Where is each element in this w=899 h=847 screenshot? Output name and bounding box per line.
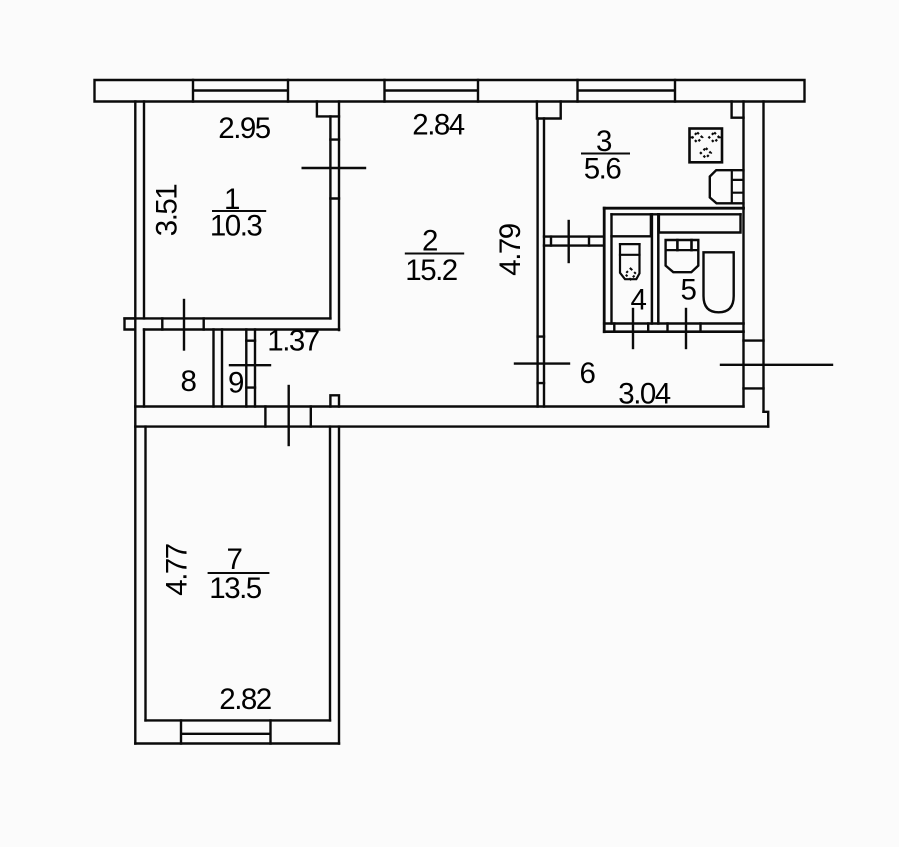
svg-text:6: 6 <box>580 357 596 390</box>
svg-text:9: 9 <box>228 367 244 400</box>
svg-text:13.5: 13.5 <box>209 572 262 605</box>
svg-text:1.37: 1.37 <box>267 325 319 358</box>
svg-text:3.51: 3.51 <box>151 185 184 237</box>
svg-text:15.2: 15.2 <box>405 254 457 287</box>
svg-text:3.04: 3.04 <box>618 378 671 411</box>
svg-text:4: 4 <box>631 284 647 317</box>
svg-text:2.84: 2.84 <box>412 109 465 142</box>
svg-text:10.3: 10.3 <box>210 210 263 243</box>
svg-text:2.95: 2.95 <box>218 112 271 145</box>
svg-text:4.79: 4.79 <box>494 223 527 276</box>
svg-text:5: 5 <box>681 274 697 307</box>
svg-text:8: 8 <box>181 365 197 398</box>
svg-text:2.82: 2.82 <box>219 683 271 716</box>
svg-text:5.6: 5.6 <box>584 153 622 186</box>
svg-text:4.77: 4.77 <box>161 544 194 596</box>
